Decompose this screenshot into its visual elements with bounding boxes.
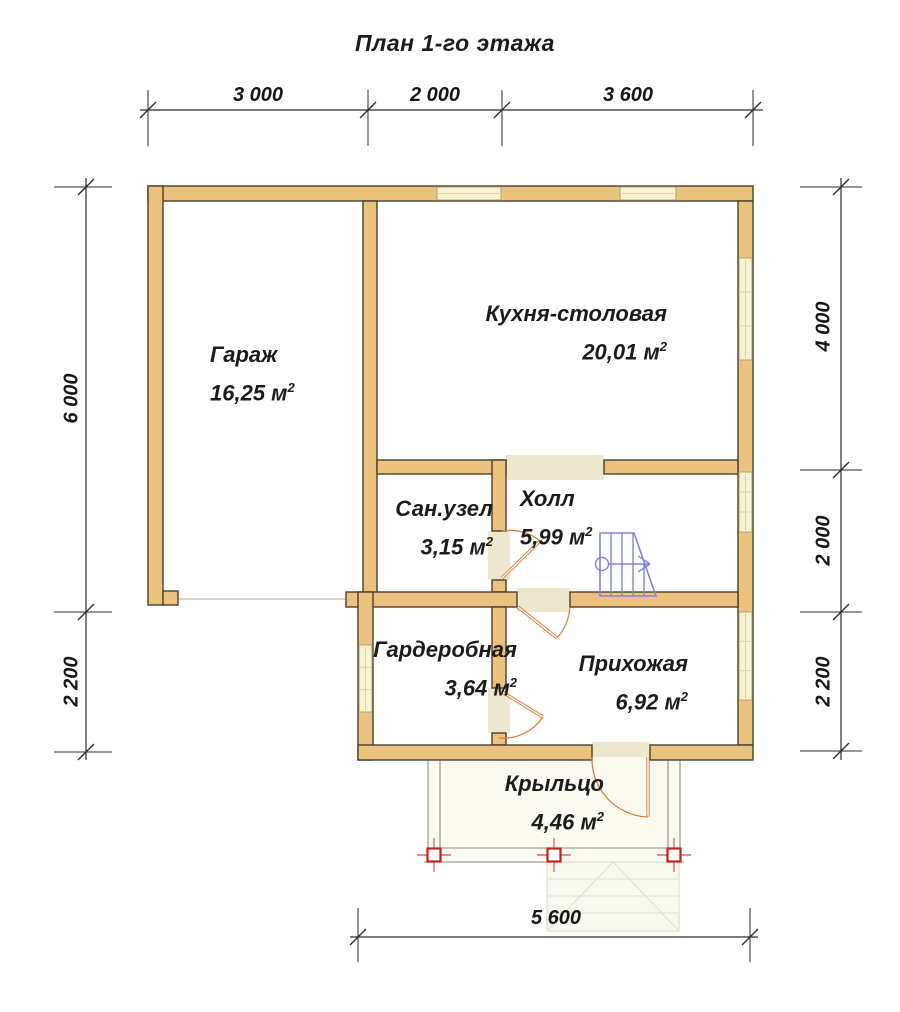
stair-start-circle bbox=[596, 558, 609, 571]
windows bbox=[359, 187, 752, 712]
floor-opening bbox=[506, 455, 604, 480]
wall-kitchen-bottom-wall-left bbox=[377, 460, 506, 474]
wall-kitchen-bottom-wall-right bbox=[604, 460, 738, 474]
wall-bathroom-right-wall-stub bbox=[492, 580, 506, 592]
walls bbox=[148, 186, 753, 760]
staircase bbox=[596, 533, 657, 596]
wall-garage-kitchen-wall bbox=[363, 201, 377, 598]
floor-openings bbox=[488, 455, 650, 762]
floor-opening bbox=[517, 588, 570, 612]
wall-bathroom-right-wall bbox=[492, 460, 506, 531]
porch-steps bbox=[547, 862, 679, 931]
porch-post bbox=[548, 849, 561, 862]
wall-mid-wall-right bbox=[570, 592, 738, 607]
porch-post bbox=[668, 849, 681, 862]
wall-bottom-wall-left bbox=[358, 745, 592, 760]
floor-plan-page: План 1-го этажа Гараж 16,25 м2 Кухня-сто… bbox=[0, 0, 900, 1012]
wall-left-wall-foot bbox=[163, 591, 178, 605]
wall-bottom-wall-right bbox=[650, 745, 753, 760]
wall-wardrobe-entry-wall-stub bbox=[492, 733, 506, 745]
wall-wardrobe-entry-wall bbox=[492, 607, 506, 688]
wall-left-wall bbox=[148, 186, 163, 605]
porch-post bbox=[428, 849, 441, 862]
floor-plan-drawing bbox=[0, 0, 900, 1012]
